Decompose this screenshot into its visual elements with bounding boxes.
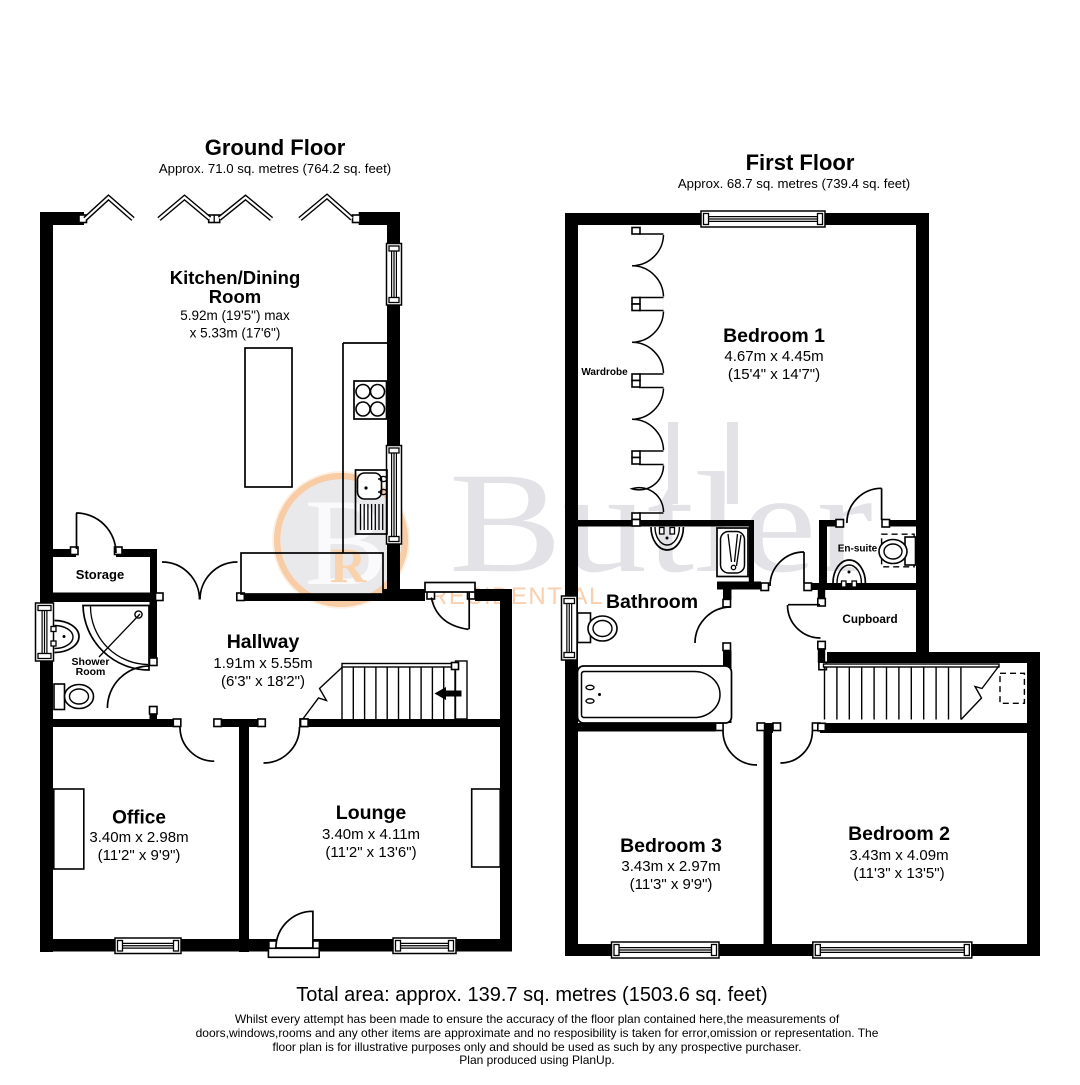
svg-text:doors,windows,rooms and any ot: doors,windows,rooms and any other items … <box>196 1026 879 1040</box>
svg-text:(11'2" x 13'6"): (11'2" x 13'6") <box>325 844 416 861</box>
svg-text:Approx. 71.0 sq. metres (764.2: Approx. 71.0 sq. metres (764.2 sq. feet) <box>159 161 391 176</box>
svg-text:Whilst every attempt has been: Whilst every attempt has been made to en… <box>235 1012 840 1026</box>
svg-text:Office: Office <box>112 808 166 829</box>
svg-text:(11'3" x 13'5"): (11'3" x 13'5") <box>853 865 944 882</box>
svg-text:Hallway: Hallway <box>227 631 300 653</box>
svg-text:Room: Room <box>209 286 261 307</box>
svg-text:En-suite: En-suite <box>838 544 878 555</box>
svg-text:Lounge: Lounge <box>336 802 407 824</box>
svg-text:Bedroom 3: Bedroom 3 <box>620 835 722 857</box>
svg-text:(11'3" x 9'9"): (11'3" x 9'9") <box>630 876 713 893</box>
svg-text:R: R <box>330 537 367 593</box>
svg-text:Wardrobe: Wardrobe <box>581 367 628 378</box>
svg-text:(15'4" x 14'7"): (15'4" x 14'7") <box>728 366 820 383</box>
svg-text:First Floor: First Floor <box>746 150 855 175</box>
svg-text:4.67m x 4.45m: 4.67m x 4.45m <box>724 348 823 365</box>
svg-text:(11'2" x 9'9"): (11'2" x 9'9") <box>98 847 181 864</box>
svg-text:Approx. 68.7 sq. metres (739.4: Approx. 68.7 sq. metres (739.4 sq. feet) <box>678 176 910 191</box>
svg-text:Total area: approx. 139.7 sq.: Total area: approx. 139.7 sq. metres (15… <box>296 984 767 1006</box>
svg-text:Plan produced using PlanUp.: Plan produced using PlanUp. <box>459 1053 614 1067</box>
svg-text:Room: Room <box>76 666 106 678</box>
svg-text:3.40m x 4.11m: 3.40m x 4.11m <box>322 826 420 843</box>
svg-text:Bedroom 2: Bedroom 2 <box>848 823 950 845</box>
svg-text:5.92m (19'5") max: 5.92m (19'5") max <box>180 308 290 323</box>
svg-text:3.43m x 2.97m: 3.43m x 2.97m <box>621 858 720 875</box>
svg-text:(6'3" x 18'2"): (6'3" x 18'2") <box>221 673 305 690</box>
svg-text:Bedroom 1: Bedroom 1 <box>723 325 825 347</box>
svg-text:Storage: Storage <box>76 567 124 582</box>
svg-text:Cupboard: Cupboard <box>842 613 897 626</box>
svg-text:floor plan is for illustrative: floor plan is for illustrative purposes … <box>273 1040 802 1054</box>
svg-text:Kitchen/Dining: Kitchen/Dining <box>170 267 301 288</box>
svg-text:3.43m x 4.09m: 3.43m x 4.09m <box>849 847 948 864</box>
svg-text:Bathroom: Bathroom <box>606 591 698 613</box>
svg-text:3.40m x 2.98m: 3.40m x 2.98m <box>89 829 188 846</box>
svg-text:Ground Floor: Ground Floor <box>205 135 346 160</box>
svg-text:x 5.33m (17'6"): x 5.33m (17'6") <box>190 326 281 341</box>
svg-text:1.91m x 5.55m: 1.91m x 5.55m <box>213 655 312 672</box>
